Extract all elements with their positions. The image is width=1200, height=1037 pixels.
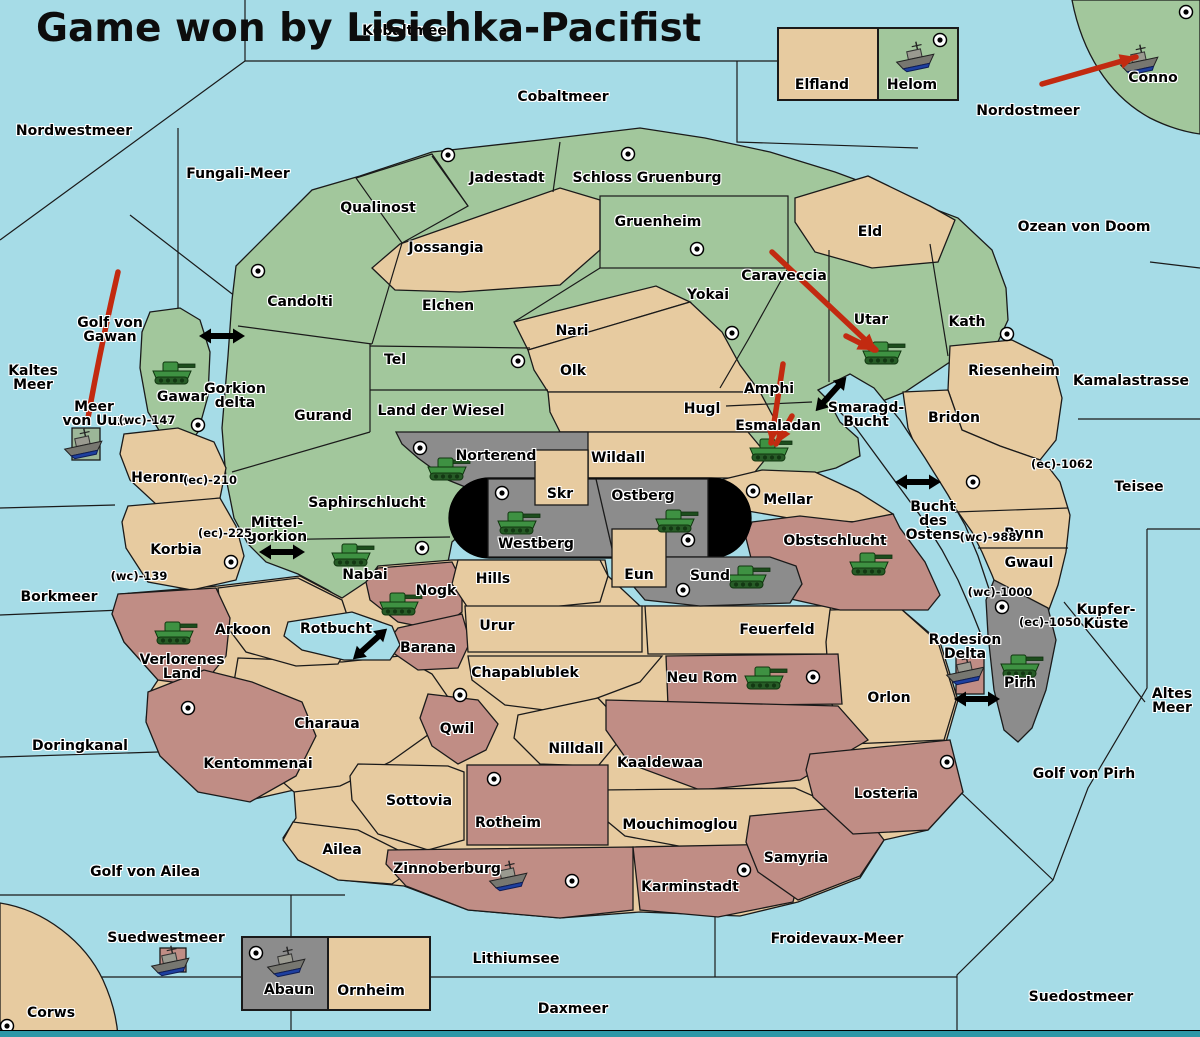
sea-label-froidevaux-meer: Froidevaux-Meer [771,932,904,946]
territory-label-hills: Hills [476,572,510,586]
territory-label-yokai: Yokai [687,288,729,302]
territory-label-verlorenes-land: VerlorenesLand [139,653,224,681]
territory-label-elfland: Elfland [795,78,849,92]
territory-label-pirh: Pirh [1004,676,1036,690]
territory-label-norterend: Norterend [456,449,537,463]
territory-label-kaaldewaa: Kaaldewaa [617,756,703,770]
territory-label-nilldall: Nilldall [548,742,603,756]
sea-label-bucht-des-ostens: BuchtdesOstens [906,500,961,542]
territory-label-saphirschlucht: Saphirschlucht [308,496,426,510]
sea-label-cobaltmeer: Cobaltmeer [517,90,608,104]
territory-label-gurand: Gurand [294,409,352,423]
sea-label-ozean-von-doom: Ozean von Doom [1018,220,1151,234]
sea-label-teisee: Teisee [1114,480,1163,494]
territory-label-zinnoberburg: Zinnoberburg [393,862,501,876]
territory-label-neu-rom: Neu Rom [666,671,737,685]
sea-label-mittel-gorkion: Mittel-gorkion [247,516,307,544]
sea-label-kupfer-k-ste: Kupfer-Küste [1077,603,1136,631]
sea-label-altes-meer: AltesMeer [1152,687,1192,715]
territory-label-conno: Conno [1128,71,1177,85]
territory-label-kath: Kath [949,315,986,329]
territory-label-feuerfeld: Feuerfeld [739,623,814,637]
sea-label-golf-von-ailea: Golf von Ailea [90,865,200,879]
territory-label-obstschlucht: Obstschlucht [783,534,886,548]
coast-marker--ec-225: (ec)-225 [198,526,252,540]
territory-label-qwil: Qwil [440,722,474,736]
territory-label-eun: Eun [624,568,654,582]
territory-label-candolti: Candolti [267,295,333,309]
sea-label-gorkion-delta: Gorkiondelta [204,382,266,410]
sea-label-nordwestmeer: Nordwestmeer [16,124,132,138]
territory-label-amphi: Amphi [744,382,794,396]
territory-label-utar: Utar [854,313,888,327]
sea-label-meer-von-uuz: Meervon Uuz [62,400,125,428]
territory-label-heronn: Heronn [131,471,189,485]
territory-label-corws: Corws [27,1006,75,1020]
coast-marker--wc-988: (wc)-988 [960,530,1017,544]
territory-label-korbia: Korbia [150,543,201,557]
territory-label-urur: Urur [479,619,514,633]
territory-label-abaun: Abaun [264,983,314,997]
territory-label-kentommenai: Kentommenai [203,757,312,771]
territory-label-ostberg: Ostberg [611,489,674,503]
territory-label-mellar: Mellar [763,493,812,507]
sea-label-golf-von-gawan: Golf vonGawan [77,316,143,344]
territory-label-sottovia: Sottovia [386,794,452,808]
territory-label-westberg: Westberg [498,537,574,551]
territory-label-esmaladan: Esmaladan [735,419,821,433]
territory-label-samyria: Samyria [764,851,828,865]
territory-label-olk: Olk [560,364,586,378]
sea-label-daxmeer: Daxmeer [538,1002,609,1016]
territory-label-rotheim: Rotheim [475,816,541,830]
coast-marker--ec-210: (ec)-210 [183,473,237,487]
page-title: Game won by Lisichka-Pacifist [36,6,701,51]
sea-label-golf-von-pirh: Golf von Pirh [1033,767,1135,781]
territory-label-charaua: Charaua [294,717,359,731]
territory-label-nogk: Nogk [416,584,457,598]
sea-label-kamalastrasse: Kamalastrasse [1073,374,1189,388]
territory-label-rodesion-delta: RodesionDelta [929,633,1002,661]
territory-label-schloss-gruenburg: Schloss Gruenburg [572,171,721,185]
sea-label-smaragd-bucht: Smaragd-Bucht [828,401,904,429]
sea-label-kaltes-meer: KaltesMeer [8,364,58,392]
sea-label-fungali-meer: Fungali-Meer [186,167,290,181]
coast-marker--ec-1062: (ec)-1062 [1031,457,1093,471]
territory-label-gwaul: Gwaul [1005,556,1054,570]
territory-label-bridon: Bridon [928,411,980,425]
territory-label-chapablublek: Chapablublek [471,666,579,680]
territory-label-karminstadt: Karminstadt [641,880,739,894]
territory-label-arkoon: Arkoon [215,623,271,637]
territory-label-tel: Tel [384,353,406,367]
territory-label-gawar: Gawar [157,390,207,404]
territory-label-wildall: Wildall [591,451,645,465]
game-map[interactable]: NordwestmeerKobaltmeerCobaltmeerNordostm… [0,0,1200,1037]
territory-label-barana: Barana [400,641,456,655]
coast-marker--ec-1050: (ec)-1050 [1019,615,1081,629]
territory-label-gruenheim: Gruenheim [615,215,702,229]
territory-label-mouchimoglou: Mouchimoglou [622,818,737,832]
territory-label-eld: Eld [858,225,882,239]
sea-label-lithiumsee: Lithiumsee [472,952,559,966]
territory-label-jossangia: Jossangia [408,241,483,255]
sea-label-rotbucht: Rotbucht [300,622,372,636]
territory-label-qualinost: Qualinost [340,201,416,215]
territory-label-caraveccia: Caraveccia [741,269,827,283]
sea-label-suedostmeer: Suedostmeer [1029,990,1134,1004]
coast-marker--wc-139: (wc)-139 [111,569,168,583]
labels-layer: NordwestmeerKobaltmeerCobaltmeerNordostm… [0,0,1200,1037]
territory-label-nari: Nari [556,324,589,338]
coast-marker--wc-1000: (wc)-1000 [968,585,1033,599]
territory-label-land-der-wiesel: Land der Wiesel [378,404,505,418]
territory-label-nabai: Nabai [342,568,387,582]
territory-label-helom: Helom [887,78,937,92]
sea-label-suedwestmeer: Suedwestmeer [107,931,225,945]
sea-label-borkmeer: Borkmeer [21,590,98,604]
territory-label-elchen: Elchen [422,299,474,313]
territory-label-ornheim: Ornheim [337,984,405,998]
territory-label-riesenheim: Riesenheim [968,364,1060,378]
territory-label-jadestadt: Jadestadt [469,171,544,185]
territory-label-losteria: Losteria [854,787,918,801]
territory-label-ailea: Ailea [322,843,361,857]
territory-label-orlon: Orlon [867,691,910,705]
territory-label-skr: Skr [547,487,573,501]
territory-label-hugl: Hugl [684,402,721,416]
sea-label-nordostmeer: Nordostmeer [976,104,1079,118]
territory-label-sund: Sund [690,569,730,583]
coast-marker--wc-147: (wc)-147 [119,413,176,427]
sea-label-doringkanal: Doringkanal [32,739,128,753]
